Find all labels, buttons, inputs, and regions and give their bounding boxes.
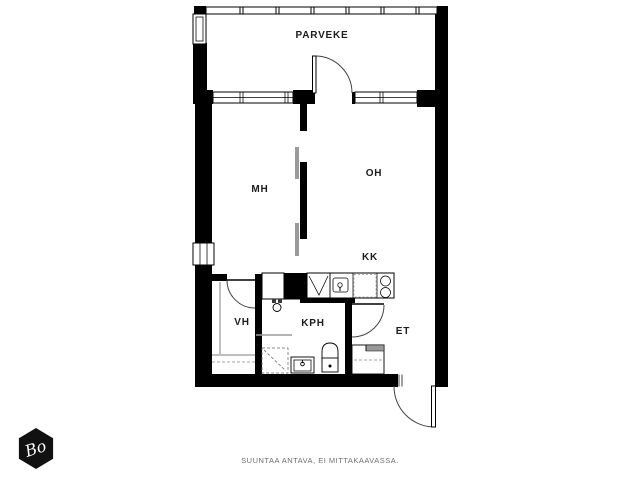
wall-balcony-left [193,43,207,93]
room-label-parveke: PARVEKE [295,30,348,41]
kitchen-counter [307,273,394,298]
wall-kph-right [345,303,352,375]
shower-area [262,348,288,373]
floorplan-drawing: PARVEKE MH OH KK VH KPH ET [0,0,640,480]
balcony-railing [194,6,448,18]
room-label-oh: OH [366,168,383,179]
wall-mh-bottom-stub [212,274,227,281]
wall-left-upper [195,90,212,244]
room-label-kph: KPH [301,318,325,329]
balcony-door [313,56,353,93]
wall-mh-oh-lower [300,162,307,239]
room-label-mh: MH [251,184,268,195]
balcony-side-window [193,14,206,44]
kph-sink [291,357,314,373]
mh-window [213,92,293,103]
wall-band-right-corner [417,90,437,107]
toilet [322,343,338,372]
footer-disclaimer: SUUNTAA ANTAVA, EI MITTAKAAVASSA. [0,456,640,465]
floorplan-canvas: PARVEKE MH OH KK VH KPH ET Bo SUUNTAA AN… [0,0,640,480]
oh-window [355,92,417,103]
wall-left-lower [195,264,212,375]
vh-door [227,280,255,308]
room-label-et: ET [396,326,410,337]
wall-block-kph-top [284,273,307,299]
sliding-door-panel-lower [295,223,299,256]
railing-bar [206,7,437,14]
wall-mh-oh-upper [300,103,307,131]
wall-right-exterior [435,14,448,387]
wall-bottom [195,374,398,387]
et-wardrobe [352,345,384,374]
kph-fixtures [256,299,338,373]
wall-window-pier [293,90,315,104]
mh-closet-cabinet [262,273,284,299]
shower-head-icon [272,299,282,312]
entrance-door [394,375,436,428]
wall-vh-kph [255,274,262,375]
room-label-kk: KK [362,252,378,263]
mh-side-window [193,243,214,265]
kph-door [352,304,384,337]
sliding-doors [295,147,299,256]
room-label-vh: VH [234,317,250,328]
sliding-door-panel-upper [295,147,299,179]
